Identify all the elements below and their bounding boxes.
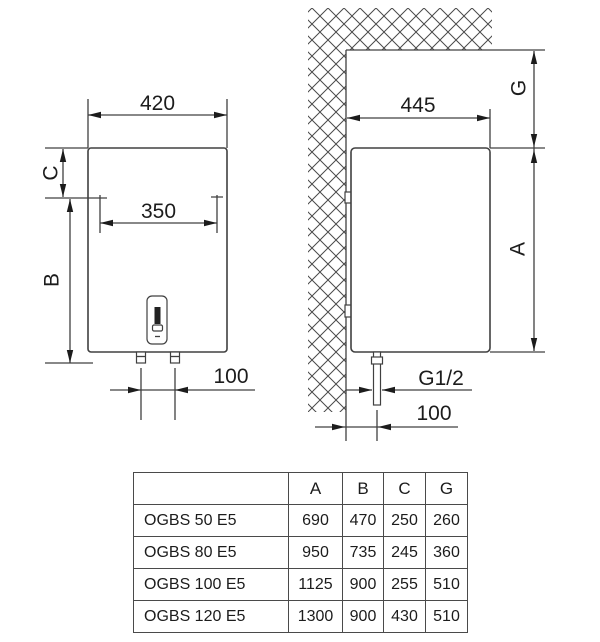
model-name: OGBS 120 E5 — [134, 601, 289, 633]
table-row: OGBS 80 E5 950 735 245 360 — [134, 537, 468, 569]
value-C: 255 — [384, 569, 426, 601]
dim-pipe-spacing-100: 100 — [110, 365, 255, 420]
value-A: 690 — [289, 505, 343, 537]
dim-G-and-A: G A — [490, 51, 545, 352]
table-corner-cell — [134, 473, 289, 505]
control-panel — [147, 296, 167, 344]
value-B: 735 — [343, 537, 384, 569]
value-A: 1300 — [289, 601, 343, 633]
col-header-C: C — [384, 473, 426, 505]
value-B: 900 — [343, 601, 384, 633]
value-A: 1125 — [289, 569, 343, 601]
dim-lower-height-B: B — [41, 199, 94, 363]
bottom-pipe — [372, 352, 383, 405]
model-name: OGBS 50 E5 — [134, 505, 289, 537]
value-G: 510 — [426, 601, 468, 633]
col-header-A: A — [289, 473, 343, 505]
front-view-tank — [88, 148, 227, 363]
water-heater-dimension-diagram: 420 C 350 B 100 — [0, 0, 600, 465]
model-name: OGBS 100 E5 — [134, 569, 289, 601]
dimension-table: A B C G OGBS 50 E5 690 470 250 260 OGBS … — [133, 472, 468, 633]
value-A: 950 — [289, 537, 343, 569]
dim-B-label: B — [41, 273, 64, 287]
dim-overall-width: 420 — [88, 92, 227, 148]
value-B: 470 — [343, 505, 384, 537]
col-header-B: B — [343, 473, 384, 505]
table-row: OGBS 50 E5 690 470 250 260 — [134, 505, 468, 537]
dim-G-label: G — [508, 80, 531, 96]
value-B: 900 — [343, 569, 384, 601]
table-row: OGBS 100 E5 1125 900 255 510 — [134, 569, 468, 601]
dim-C-label: C — [40, 165, 63, 180]
value-C: 430 — [384, 601, 426, 633]
dim-420-label: 420 — [140, 92, 175, 115]
model-name: OGBS 80 E5 — [134, 537, 289, 569]
dim-100-side-label: 100 — [416, 402, 451, 425]
dim-445-label: 445 — [400, 94, 435, 117]
dim-overall-depth-445: 445 — [347, 94, 490, 148]
dim-A-label: A — [507, 242, 530, 256]
value-G: 510 — [426, 569, 468, 601]
dim-G12-label: G1/2 — [418, 367, 464, 390]
table-row: OGBS 120 E5 1300 900 430 510 — [134, 601, 468, 633]
table-header-row: A B C G — [134, 473, 468, 505]
technical-drawing-page: 420 C 350 B 100 — [0, 0, 600, 642]
col-header-G: G — [426, 473, 468, 505]
dim-350-label: 350 — [141, 200, 176, 223]
dim-100-front-label: 100 — [213, 365, 248, 388]
value-C: 250 — [384, 505, 426, 537]
dim-pipe-thread-G12: G1/2 — [346, 367, 472, 393]
value-C: 245 — [384, 537, 426, 569]
value-G: 260 — [426, 505, 468, 537]
bottom-pipes — [137, 352, 180, 363]
value-G: 360 — [426, 537, 468, 569]
